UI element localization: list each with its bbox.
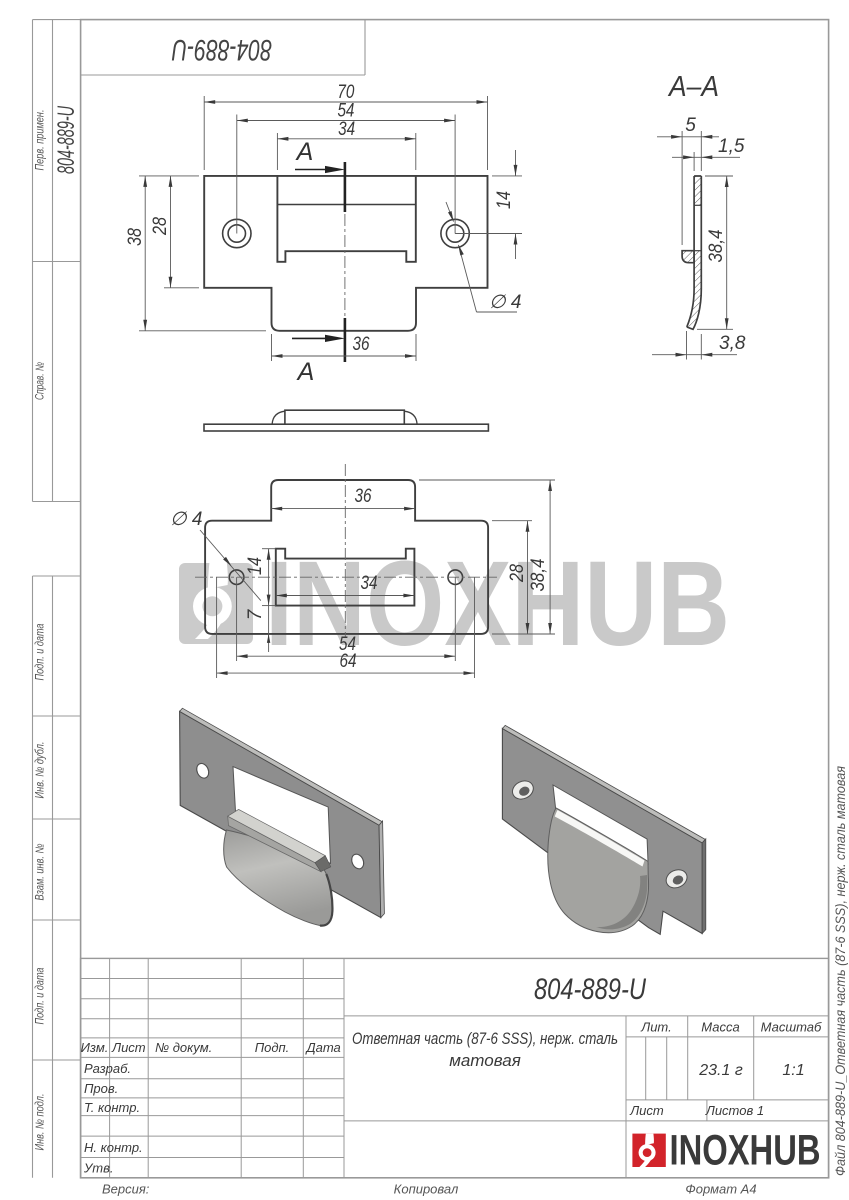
svg-text:38,4: 38,4 bbox=[528, 559, 549, 592]
svg-text:36: 36 bbox=[355, 486, 372, 507]
svg-text:34: 34 bbox=[361, 573, 378, 594]
svg-text:7: 7 bbox=[245, 608, 266, 620]
svg-text:А: А bbox=[295, 138, 314, 166]
svg-text:Подп. и дата: Подп. и дата bbox=[35, 968, 47, 1025]
svg-text:Пров.: Пров. bbox=[84, 1081, 118, 1096]
svg-text:1,5: 1,5 bbox=[718, 136, 745, 157]
svg-text:38,4: 38,4 bbox=[706, 230, 727, 263]
svg-text:Взам. инв. №: Взам. инв. № bbox=[35, 843, 47, 900]
svg-text:36: 36 bbox=[353, 334, 370, 355]
svg-text:Дата: Дата bbox=[304, 1040, 340, 1055]
svg-text:804-889-U: 804-889-U bbox=[534, 973, 646, 1006]
svg-text:Утв.: Утв. bbox=[83, 1161, 114, 1176]
svg-text:А: А bbox=[296, 358, 315, 386]
svg-text:5: 5 bbox=[685, 115, 696, 136]
svg-text:Лит.: Лит. bbox=[640, 1020, 671, 1035]
svg-text:Формат А4: Формат А4 bbox=[685, 1182, 756, 1197]
svg-text:А–А: А–А bbox=[667, 71, 719, 103]
svg-text:Версия:: Версия: bbox=[102, 1182, 150, 1197]
svg-text:INOXHUB: INOXHUB bbox=[265, 535, 730, 671]
svg-text:Лист: Лист bbox=[629, 1103, 664, 1118]
svg-text:1:1: 1:1 bbox=[782, 1062, 804, 1079]
svg-text:Инв. № подл.: Инв. № подл. bbox=[35, 1094, 47, 1151]
svg-text:∅ 4: ∅ 4 bbox=[489, 292, 521, 313]
svg-text:Лист: Лист bbox=[111, 1040, 146, 1055]
svg-text:Масса: Масса bbox=[701, 1020, 739, 1035]
svg-text:Масштаб: Масштаб bbox=[761, 1020, 822, 1035]
svg-text:Файл 804-889-U_Ответная часть: Файл 804-889-U_Ответная часть (87-6 SSS)… bbox=[832, 766, 848, 1176]
svg-text:Копировал: Копировал bbox=[394, 1182, 459, 1197]
svg-text:804-889-U: 804-889-U bbox=[172, 33, 272, 66]
svg-text:INOXHUB: INOXHUB bbox=[670, 1127, 821, 1175]
svg-text:Подп. и дата: Подп. и дата bbox=[35, 624, 47, 681]
svg-text:Т. контр.: Т. контр. bbox=[84, 1100, 140, 1115]
svg-text:804-889-U: 804-889-U bbox=[53, 106, 80, 174]
svg-text:Изм.: Изм. bbox=[81, 1040, 109, 1055]
svg-text:28: 28 bbox=[150, 217, 171, 236]
svg-text:Ответная часть (87-6 SSS), нер: Ответная часть (87-6 SSS), нерж. сталь bbox=[352, 1029, 618, 1048]
svg-text:14: 14 bbox=[245, 557, 266, 575]
svg-text:Справ. №: Справ. № bbox=[35, 362, 47, 400]
svg-text:38: 38 bbox=[125, 228, 146, 246]
svg-text:28: 28 bbox=[507, 564, 528, 583]
svg-text:34: 34 bbox=[338, 119, 355, 140]
svg-text:14: 14 bbox=[494, 191, 515, 209]
svg-text:23.1 г: 23.1 г bbox=[698, 1062, 743, 1079]
svg-text:Разраб.: Разраб. bbox=[84, 1061, 131, 1076]
svg-text:3,8: 3,8 bbox=[719, 333, 746, 354]
svg-text:64: 64 bbox=[340, 651, 357, 672]
svg-text:Подп.: Подп. bbox=[255, 1040, 290, 1055]
svg-text:№ докум.: № докум. bbox=[155, 1040, 212, 1055]
svg-text:∅ 4: ∅ 4 bbox=[170, 509, 202, 530]
svg-text:матовая: матовая bbox=[449, 1051, 521, 1070]
svg-text:Листов 1: Листов 1 bbox=[705, 1103, 764, 1118]
svg-text:Инв. № дубл.: Инв. № дубл. bbox=[35, 742, 47, 799]
svg-text:Н. контр.: Н. контр. bbox=[84, 1140, 143, 1155]
svg-text:Перв. примен.: Перв. примен. bbox=[35, 110, 47, 171]
